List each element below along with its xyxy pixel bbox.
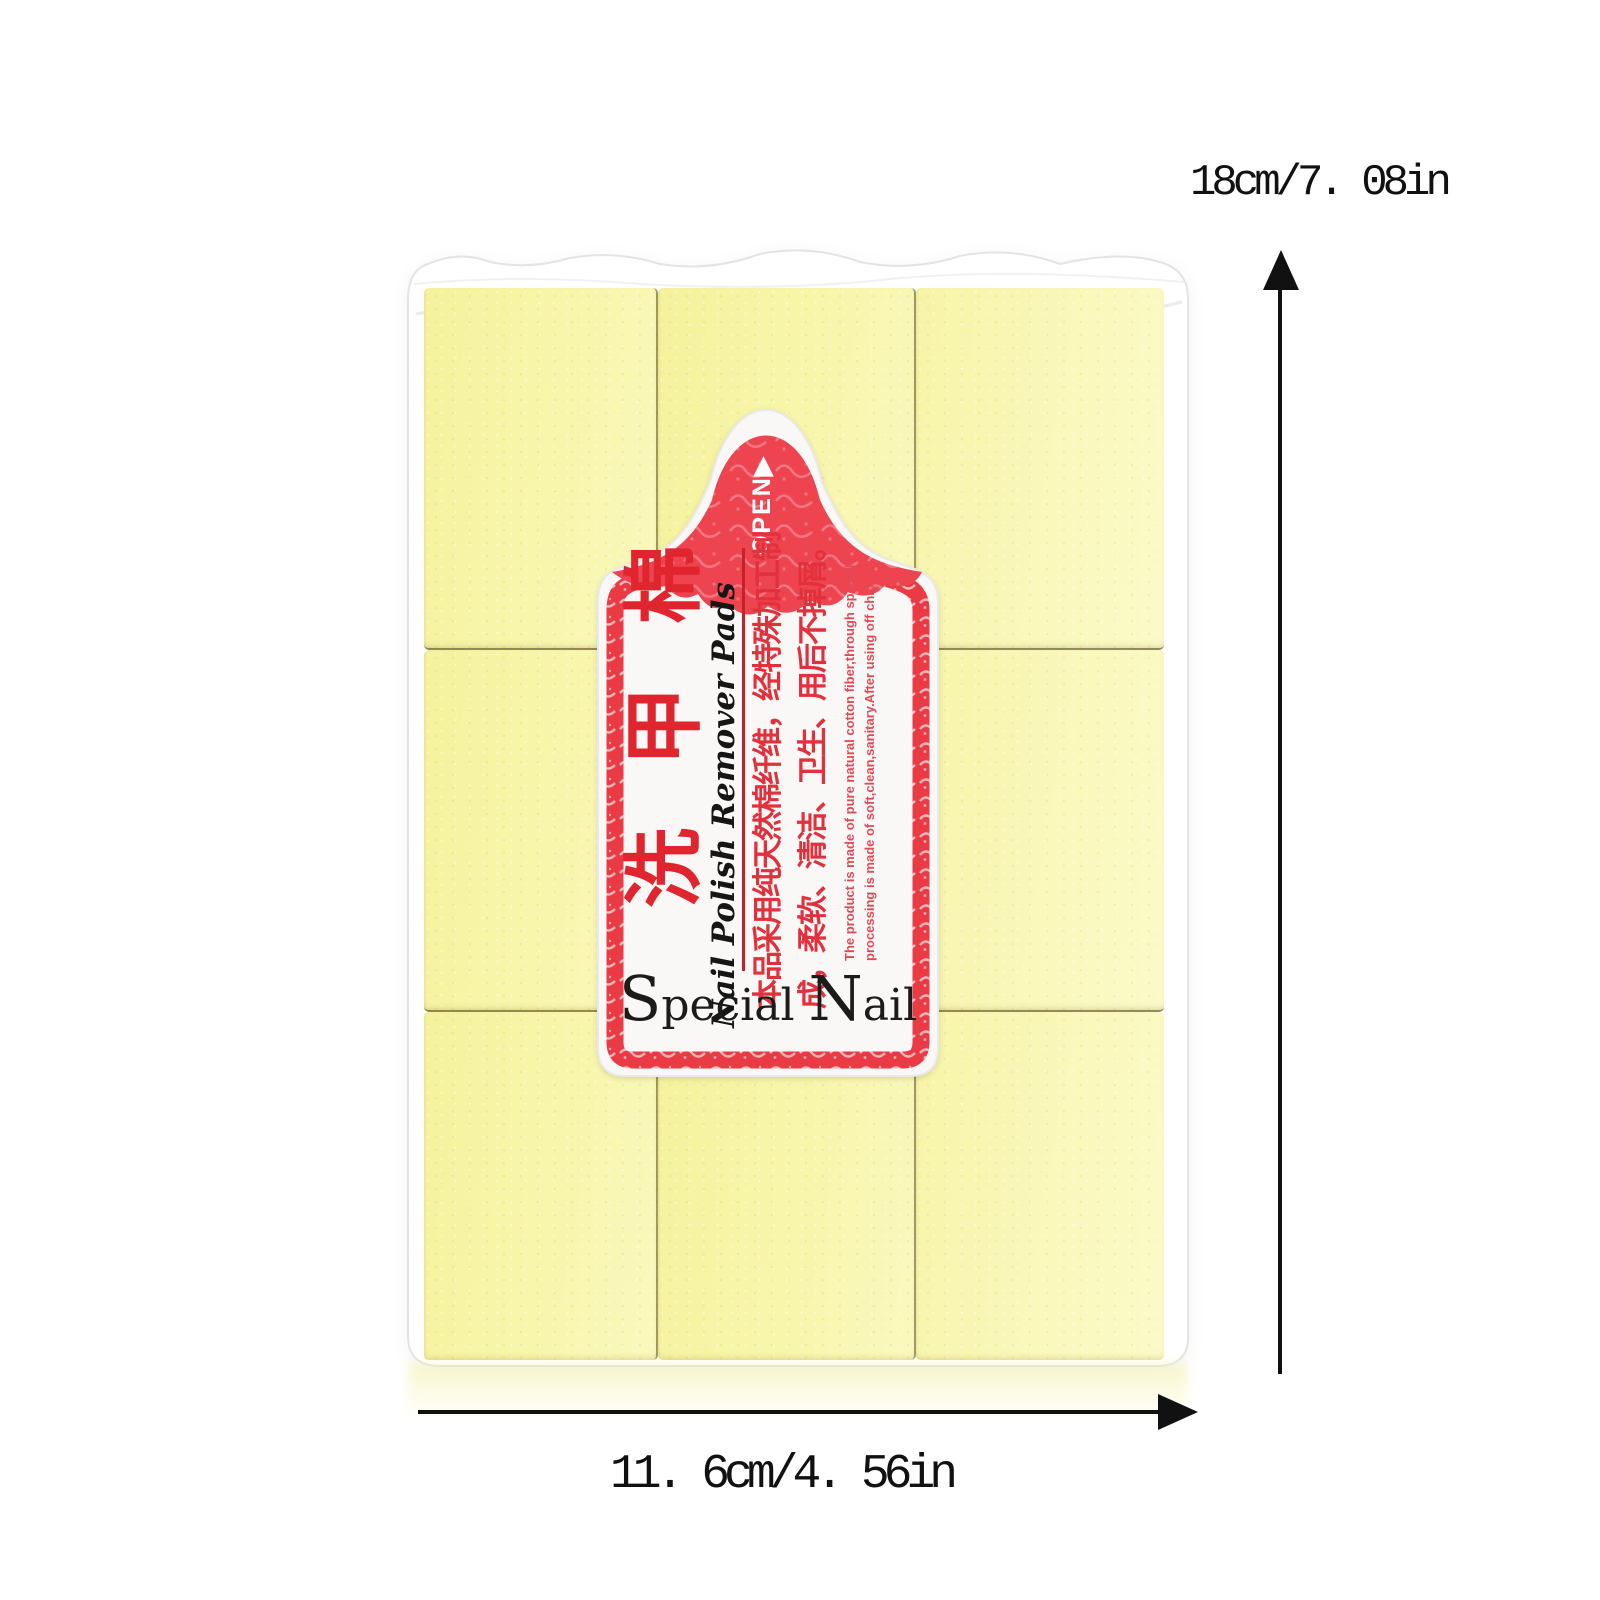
label-title-chinese: 洗甲棉 — [618, 570, 710, 970]
height-arrow-line — [1278, 288, 1282, 1374]
label-description-english-line1: The product is made of pure natural cott… — [840, 561, 860, 961]
brand-name: Special Nail — [616, 968, 920, 1048]
width-arrow-line — [418, 1410, 1162, 1414]
cotton-pad — [916, 288, 1164, 650]
width-dimension-label: 11. 6cm/4. 56in — [610, 1448, 952, 1502]
label-description-english-line2: processing is made of soft,clean,sanitar… — [860, 561, 880, 961]
height-dimension-label: 18cm/7. 08in — [1190, 158, 1447, 208]
brand-text: ail — [863, 980, 917, 1031]
product-label: OPEN▶ 洗甲棉 Nail Polish Remover Pads 本品采用纯… — [588, 396, 948, 1080]
width-arrow-right-icon — [1158, 1394, 1198, 1430]
label-description-english: The product is made of pure natural cott… — [840, 561, 882, 961]
cotton-pad — [916, 650, 1164, 1012]
product-photo: OPEN▶ 洗甲棉 Nail Polish Remover Pads 本品采用纯… — [0, 0, 1600, 1600]
label-description-chinese: 本品采用纯天然棉纤维，经特殊加工制 成，柔软、清洁、卫生、用后不掉屑。 — [746, 539, 836, 1009]
height-arrow-up-icon — [1263, 250, 1299, 290]
brand-text: pecial — [661, 980, 808, 1031]
label-description-chinese-line1: 本品采用纯天然棉纤维，经特殊加工制 — [746, 539, 791, 1009]
label-description-chinese-line2: 成，柔软、清洁、卫生、用后不掉屑。 — [791, 539, 836, 1009]
label-divider-line — [742, 548, 745, 971]
cotton-pad — [916, 1012, 1164, 1360]
brand-initial-s: S — [619, 962, 661, 1035]
brand-initial-n: N — [809, 962, 863, 1035]
